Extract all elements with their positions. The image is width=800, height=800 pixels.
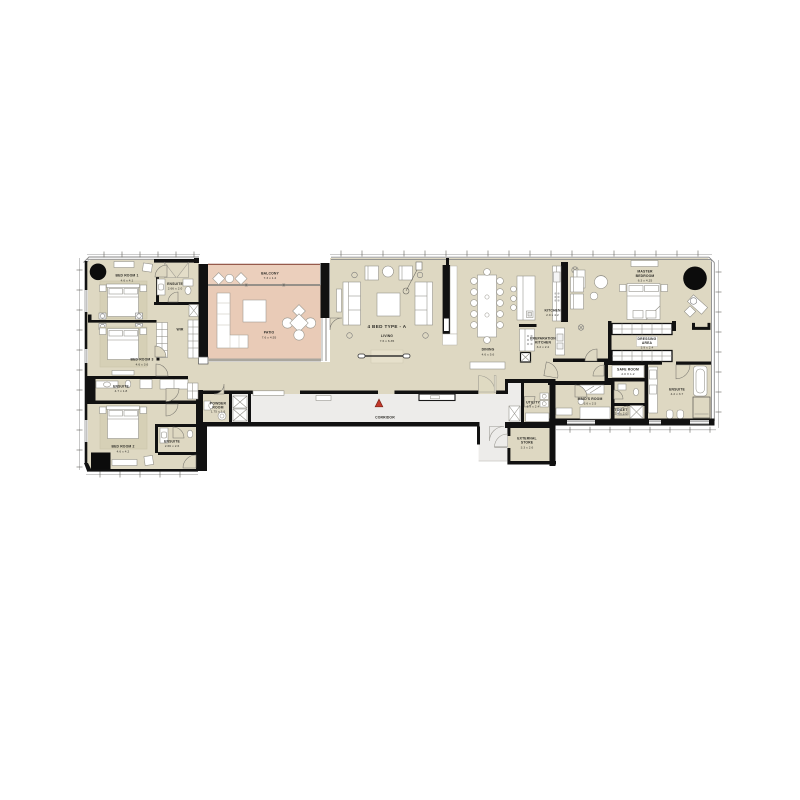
- svg-text:PATIO: PATIO: [264, 331, 275, 335]
- svg-text:ENSUITE: ENSUITE: [113, 385, 129, 389]
- svg-text:ENSUITE: ENSUITE: [164, 440, 180, 444]
- svg-text:BED ROOM 3: BED ROOM 3: [131, 358, 154, 362]
- svg-text:2.9 x 4.2: 2.9 x 4.2: [546, 313, 559, 317]
- svg-text:3.6 x 2.5: 3.6 x 2.5: [584, 402, 597, 406]
- svg-text:STORE: STORE: [521, 441, 534, 445]
- svg-text:KITCHEN: KITCHEN: [535, 341, 552, 345]
- svg-text:2.66 x 2.0: 2.66 x 2.0: [168, 287, 183, 291]
- svg-text:4.2 x 3.7: 4.2 x 3.7: [671, 392, 684, 396]
- svg-text:BEDROOM: BEDROOM: [636, 274, 655, 278]
- svg-text:BED ROOM 2: BED ROOM 2: [112, 445, 135, 449]
- svg-text:3.3 x 2.6: 3.3 x 2.6: [521, 446, 534, 450]
- svg-text:7.6 x 6.35: 7.6 x 6.35: [380, 339, 395, 343]
- svg-text:KITCHEN: KITCHEN: [544, 309, 561, 313]
- svg-text:1.75 x 1.6: 1.75 x 1.6: [211, 410, 226, 414]
- svg-text:ENSUITE: ENSUITE: [167, 282, 183, 286]
- svg-text:3.9 x 2.4: 3.9 x 2.4: [641, 346, 654, 350]
- svg-text:4.7 x 1.8: 4.7 x 1.8: [115, 389, 128, 393]
- svg-text:2.66 x 2.6: 2.66 x 2.6: [165, 444, 180, 448]
- svg-text:BED ROOM 1: BED ROOM 1: [116, 274, 139, 278]
- svg-text:7.6 x 4.55: 7.6 x 4.55: [262, 336, 277, 340]
- svg-text:SAFE ROOM: SAFE ROOM: [617, 368, 639, 372]
- svg-text:3.2 x 2.2: 3.2 x 2.2: [537, 345, 550, 349]
- svg-text:MASTER: MASTER: [637, 270, 653, 274]
- svg-text:MAID'S ROOM: MAID'S ROOM: [578, 397, 603, 401]
- svg-text:CORRIDOR: CORRIDOR: [375, 415, 395, 419]
- svg-text:WIR: WIR: [176, 328, 183, 332]
- svg-text:BALCONY: BALCONY: [261, 272, 279, 276]
- svg-text:4.6 x 4.2: 4.6 x 4.2: [117, 450, 130, 454]
- svg-text:AREA: AREA: [642, 341, 653, 345]
- svg-text:1.9 x 2.4: 1.9 x 2.4: [527, 405, 540, 409]
- svg-text:LIVING: LIVING: [381, 334, 393, 338]
- svg-text:2.0 X 1.2: 2.0 X 1.2: [621, 372, 634, 376]
- svg-text:DINING: DINING: [482, 348, 495, 352]
- svg-text:7.3 x 1.2: 7.3 x 1.2: [264, 276, 277, 280]
- svg-text:6.3 x 4.25: 6.3 x 4.25: [638, 279, 653, 283]
- svg-text:4.6 x 4.1: 4.6 x 4.1: [121, 279, 134, 283]
- svg-text:4.6 x 3.6: 4.6 x 3.6: [136, 363, 149, 367]
- svg-text:4.6 x 5.6: 4.6 x 5.6: [482, 353, 495, 357]
- svg-text:4 BED TYPE - A: 4 BED TYPE - A: [368, 324, 407, 329]
- svg-text:2.4 x 2.0: 2.4 x 2.0: [615, 412, 628, 416]
- svg-text:ENSUITE: ENSUITE: [669, 388, 685, 392]
